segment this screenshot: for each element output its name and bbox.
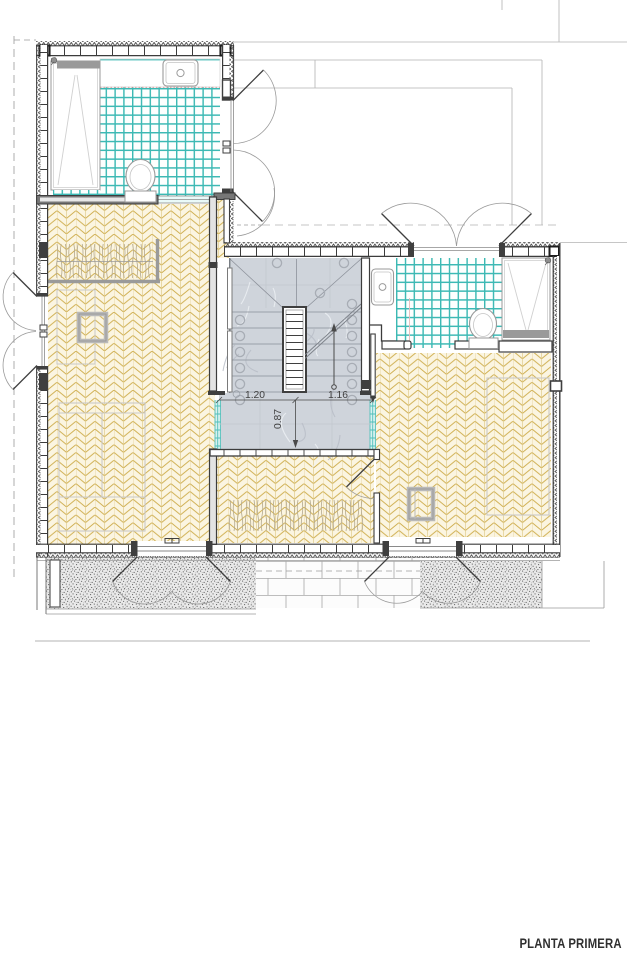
svg-text:1.16: 1.16 <box>328 390 348 401</box>
svg-text:0.87: 0.87 <box>273 409 284 429</box>
svg-text:1.20: 1.20 <box>245 390 265 401</box>
